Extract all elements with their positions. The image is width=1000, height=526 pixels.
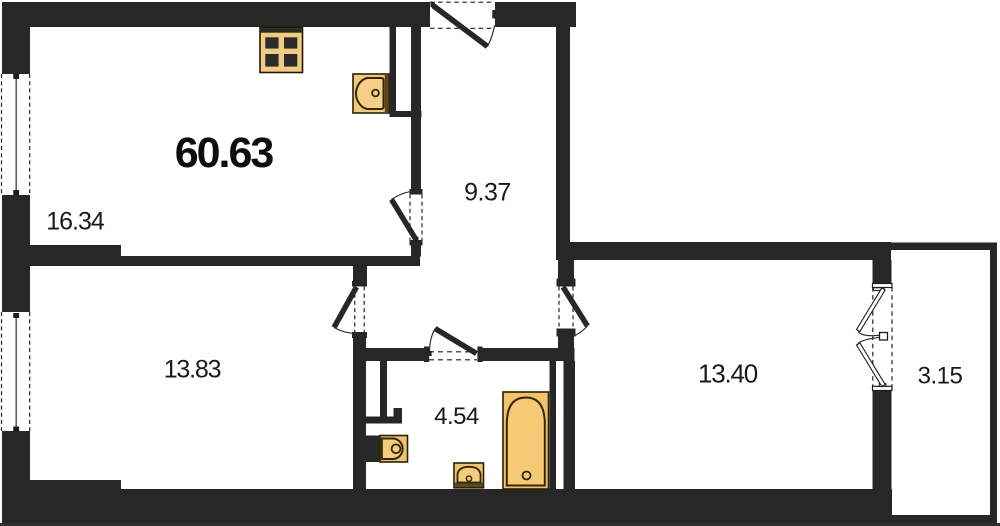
svg-text:60.63: 60.63 — [175, 129, 274, 177]
svg-text:4.54: 4.54 — [434, 403, 479, 430]
svg-text:3.15: 3.15 — [918, 363, 963, 390]
svg-text:13.40: 13.40 — [698, 359, 758, 389]
svg-text:13.83: 13.83 — [164, 356, 221, 384]
svg-text:16.34: 16.34 — [46, 208, 105, 236]
svg-text:9.37: 9.37 — [464, 179, 511, 207]
